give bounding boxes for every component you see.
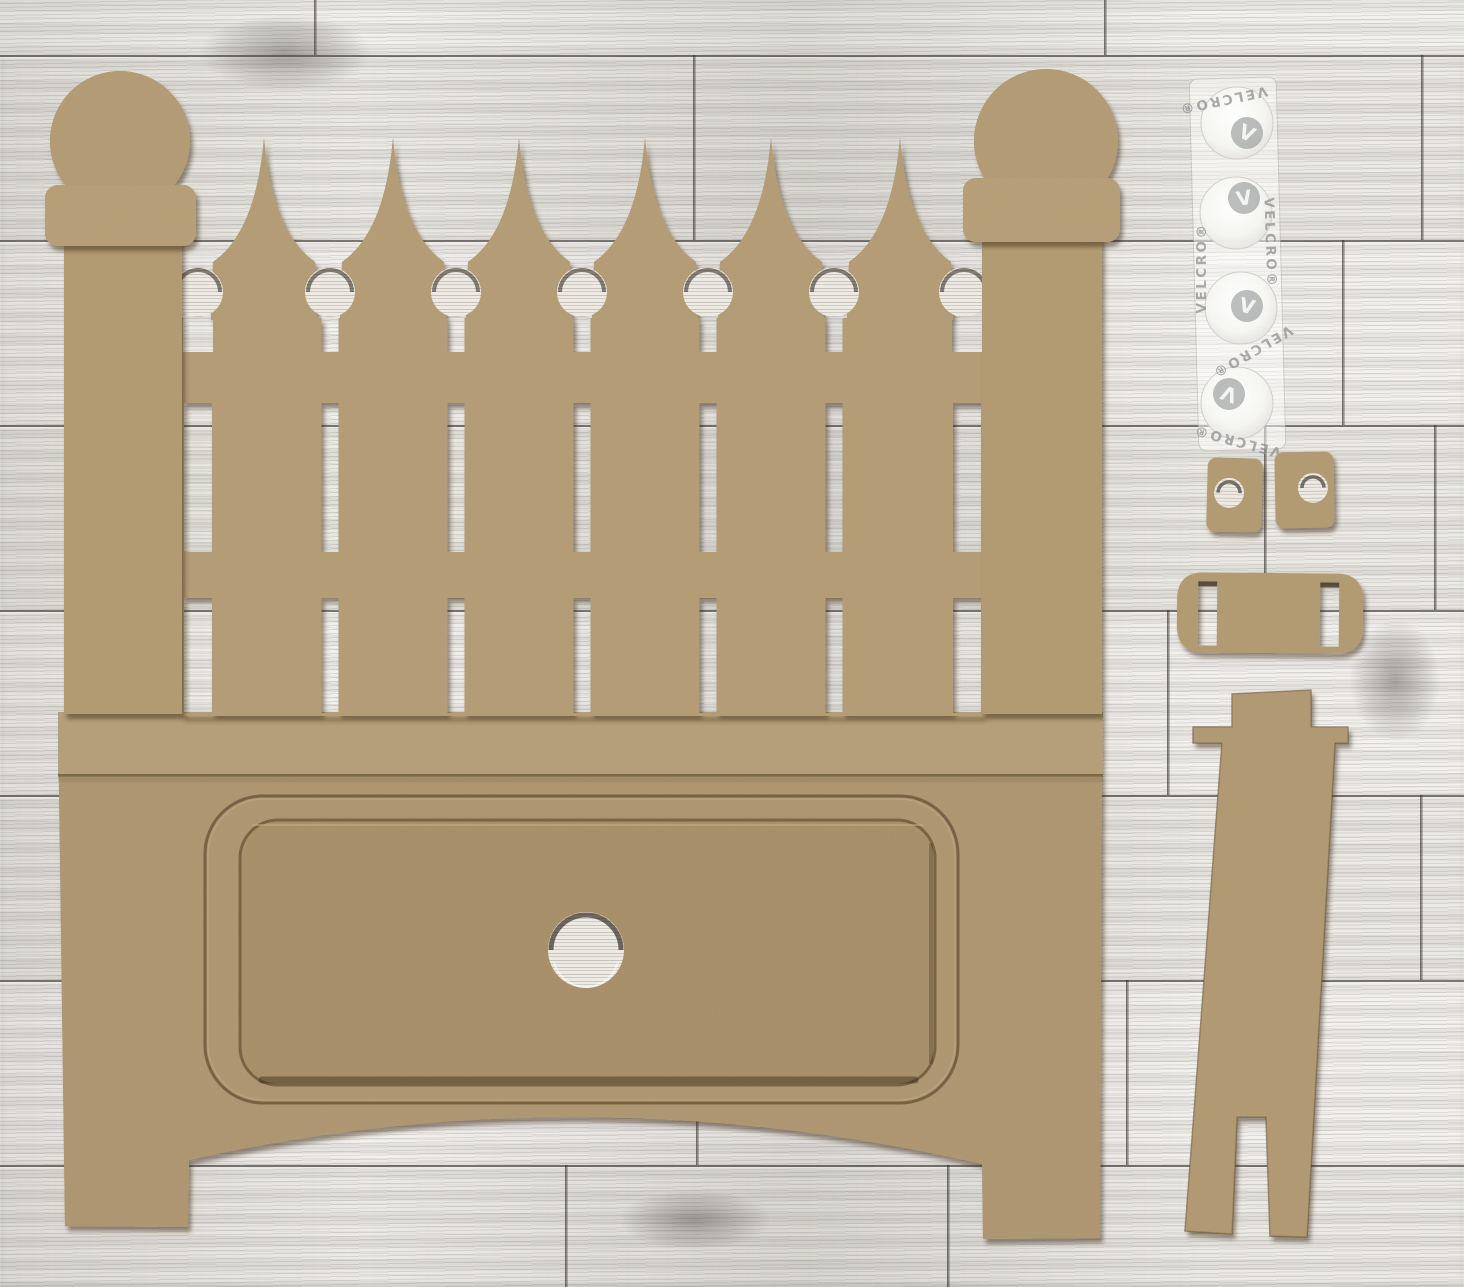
left-post — [64, 198, 182, 714]
picket-hole — [557, 267, 607, 317]
velcro-strip-group: V V V V VELCRO® VELCRO® VELCRO® VELCRO® … — [1177, 77, 1296, 460]
tab-piece-left — [1206, 457, 1263, 532]
easel-stand — [1185, 690, 1348, 1237]
center-hole — [548, 912, 624, 988]
bar-slot-shadow — [1198, 581, 1217, 586]
right-post-collar — [963, 178, 1120, 242]
picket-top — [718, 138, 824, 320]
picket-band — [182, 138, 982, 716]
craft-kit-photo: V V V V VELCRO® VELCRO® VELCRO® VELCRO® … — [0, 0, 1464, 1287]
post-collars — [45, 178, 1120, 246]
velcro-brand-text: VELCRO® — [1260, 197, 1279, 289]
rail-bottom-shade — [58, 777, 1103, 783]
left-post-collar — [45, 185, 196, 246]
velcro-brand-text: VELCRO® — [1194, 222, 1210, 313]
picket-hole — [683, 267, 733, 317]
picket-top — [211, 138, 317, 320]
fence-band — [182, 318, 982, 716]
rail-bottom-seam — [58, 774, 1103, 777]
picket-hole — [305, 267, 355, 317]
kit-pieces: V V V V VELCRO® VELCRO® VELCRO® VELCRO® … — [0, 0, 1464, 1287]
picket-top — [847, 138, 953, 320]
picket-top — [340, 138, 446, 320]
picket-top — [592, 138, 698, 320]
picket-hole — [809, 267, 859, 317]
connector-bar — [1177, 572, 1364, 654]
bar-slot-shadow — [1320, 582, 1339, 587]
picket-hole — [431, 267, 481, 317]
fence-rail — [58, 712, 1103, 776]
right-post — [982, 198, 1102, 714]
tab-piece-right — [1274, 451, 1334, 528]
picket-hole — [939, 267, 989, 317]
picket-top — [466, 138, 572, 320]
